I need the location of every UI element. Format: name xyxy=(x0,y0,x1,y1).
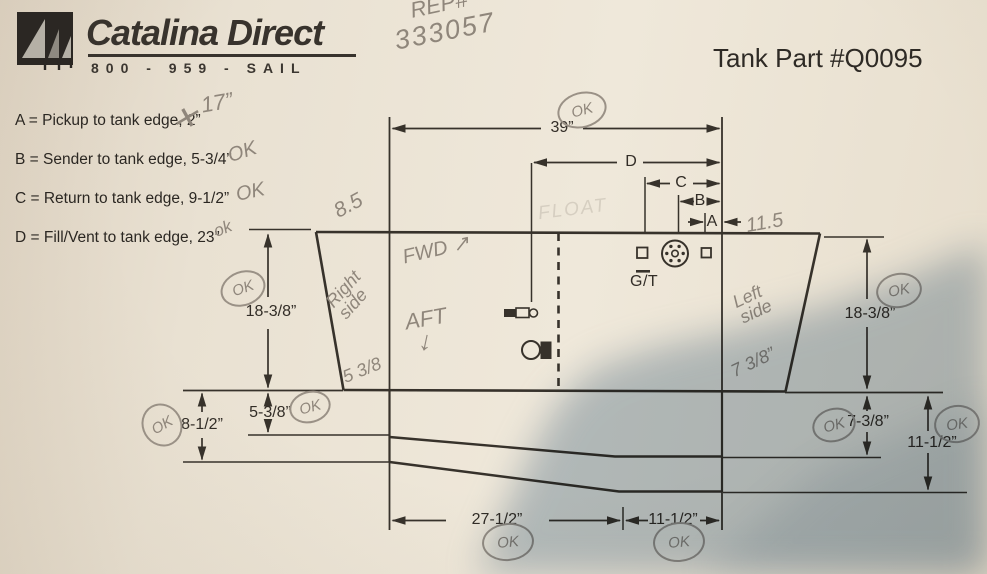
tank-diagram-linework xyxy=(0,0,987,574)
brand-underline xyxy=(88,54,356,57)
scanned-tank-drawing: Catalina Direct 800 - 959 - SAIL Tank Pa… xyxy=(0,0,987,574)
sender-label: G/T xyxy=(630,273,658,291)
sailboat-logo-icon xyxy=(14,10,80,72)
dim-label-d: D xyxy=(619,153,643,171)
fill-fitting-icon xyxy=(522,341,552,359)
dim-label-a: A xyxy=(702,213,722,231)
vent-fitting-icon xyxy=(702,248,712,258)
dim-label-left-height: 18-3/8” xyxy=(238,303,304,321)
dim-label-b: B xyxy=(690,192,710,210)
pickup-cross-mark-icon: ✕ xyxy=(170,99,200,137)
legend-line-b: B = Sender to tank edge, 5-3/4” xyxy=(15,151,232,169)
ok-text: OK xyxy=(148,412,175,438)
sender-flange-icon xyxy=(662,241,688,267)
ok-text: OK xyxy=(569,99,594,121)
ok-text: OK xyxy=(887,280,911,301)
dim-label-c: C xyxy=(670,174,692,192)
handwritten-pickup-correction: 17” xyxy=(199,87,235,118)
ok-text: OK xyxy=(821,414,846,436)
ok-text: OK xyxy=(945,414,969,434)
part-title: Tank Part #Q0095 xyxy=(713,43,923,74)
ok-text: OK xyxy=(496,533,519,552)
ok-text: OK xyxy=(667,533,690,552)
ok-text: OK xyxy=(297,396,322,418)
brand-phone: 800 - 959 - SAIL xyxy=(91,60,307,76)
ok-text: OK xyxy=(230,277,256,300)
legend-line-c: C = Return to tank edge, 9-1/2” xyxy=(15,190,229,208)
return-fitting-icon xyxy=(637,248,648,259)
brand-name: Catalina Direct xyxy=(86,12,323,54)
pickup-tube-icon xyxy=(504,308,538,318)
legend-line-d: D = Fill/Vent to tank edge, 23” xyxy=(15,229,220,247)
